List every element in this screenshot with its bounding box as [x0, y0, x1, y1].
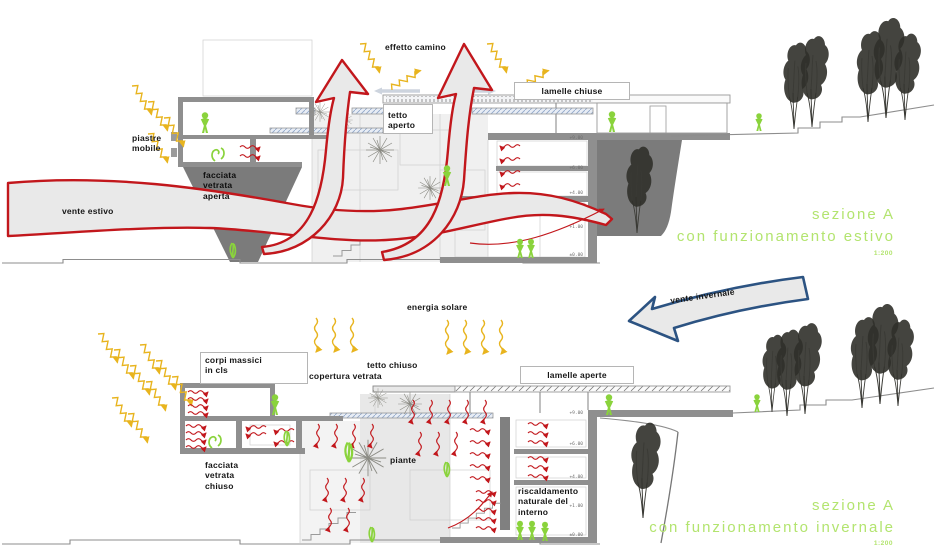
- label-copertura-vetrata: copertura vetrata: [309, 371, 382, 381]
- svg-text:+9.00: +9.00: [569, 410, 583, 416]
- svg-text:+9.00: +9.00: [569, 135, 583, 141]
- label-tetto-aperto: tetto aperto: [384, 108, 415, 131]
- svg-text:+4.00: +4.00: [569, 474, 583, 480]
- label-plate-tetto-aperto: tetto aperto: [383, 104, 433, 134]
- summer-scale: 1:200: [874, 250, 893, 257]
- summer-title-line1: sezione A: [677, 204, 895, 226]
- label-lamelle-chiuse: lamelle chiuse: [542, 86, 603, 96]
- label-effetto-camino: effetto camino: [385, 42, 446, 52]
- winter-scale: 1:200: [874, 540, 893, 547]
- label-piastre-mobile: piastre mobile: [132, 133, 161, 154]
- label-corpi-massici: corpi massici in cls: [201, 353, 262, 376]
- svg-text:±0.00: ±0.00: [569, 532, 583, 538]
- staircase: [452, 503, 501, 528]
- label-riscaldamento: riscaldamento naturale del interno: [518, 486, 590, 517]
- svg-text:+4.00: +4.00: [569, 190, 583, 196]
- svg-text:+6.00: +6.00: [569, 165, 583, 171]
- section-drawing: +9.00 +6.00 +4.00 +1.00 ±0.00: [0, 0, 935, 558]
- label-vente-estivo: vente estivo: [62, 206, 114, 216]
- label-lamelle-aperte: lamelle aperte: [547, 370, 607, 380]
- svg-text:+6.00: +6.00: [569, 441, 583, 447]
- svg-text:+1.00: +1.00: [569, 224, 583, 230]
- winter-title: sezione A con funzionamento invernale: [649, 495, 895, 539]
- winter-title-line2: con funzionamento invernale: [649, 517, 895, 539]
- summer-title-line2: con funzionamento estivo: [677, 226, 895, 248]
- bioclimatic-diagram: +9.00 +6.00 +4.00 +1.00 ±0.00: [0, 0, 935, 558]
- winter-title-line1: sezione A: [649, 495, 895, 517]
- label-energia-solare: energia solare: [407, 302, 467, 312]
- label-plate-lamelle-chiuse: lamelle chiuse: [514, 82, 630, 100]
- label-tetto-chiuso: tetto chiuso: [367, 360, 418, 370]
- label-plate-lamelle-aperte: lamelle aperte: [520, 366, 634, 384]
- label-facciata-vetrata-aperta: facciata vetrata aperta: [203, 170, 236, 201]
- label-plate-corpi-massici: corpi massici in cls: [200, 352, 308, 384]
- level-markers: +9.00 +6.00 +4.00 +1.00 ±0.00: [569, 410, 583, 538]
- label-piante: piante: [390, 455, 416, 465]
- label-facciata-vetrata-chiuso: facciata vetrata chiuso: [205, 460, 238, 491]
- winter-wind-arrow: [629, 277, 808, 341]
- summer-title: sezione A con funzionamento estivo: [677, 204, 895, 248]
- svg-text:±0.00: ±0.00: [569, 252, 583, 258]
